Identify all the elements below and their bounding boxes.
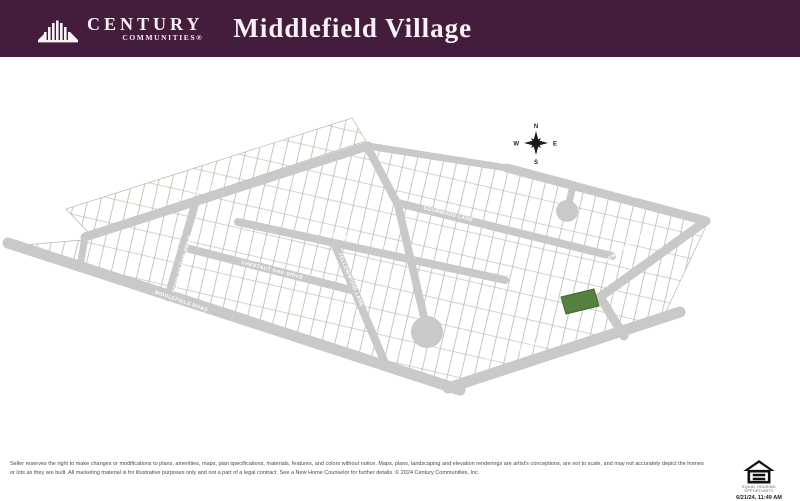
header: CENTURY COMMUNITIES® Middlefield Village <box>0 0 800 57</box>
cul-de-sac-east <box>556 200 578 222</box>
brand-name: CENTURY <box>87 15 203 33</box>
compass-s-label: S <box>534 160 538 166</box>
community-title: Middlefield Village <box>233 13 472 44</box>
equal-housing-block: EQUAL HOUSING OPPORTUNITY 6/21/24, 11:49… <box>728 460 790 501</box>
compass-w-label: W <box>513 142 519 148</box>
brand: CENTURY COMMUNITIES® <box>36 14 203 44</box>
footer: Seller reserves the right to make change… <box>0 450 800 500</box>
compass-n-label: N <box>534 124 538 130</box>
century-communities-logo-icon <box>36 14 80 44</box>
eho-label: EQUAL HOUSING OPPORTUNITY <box>728 485 790 494</box>
cul-de-sac-south <box>411 316 443 348</box>
compass-rose-icon: N S W E <box>513 124 557 166</box>
disclaimer-text: Seller reserves the right to make change… <box>10 460 710 477</box>
plat-map: N S W E <box>0 0 800 500</box>
road-west-connector <box>80 237 85 267</box>
brand-subtitle: COMMUNITIES® <box>87 34 203 42</box>
compass-e-label: E <box>553 142 557 148</box>
site-map: N S W E PURPLE IRIS STREET BRONZE OAK TE… <box>0 0 800 500</box>
equal-housing-logo-icon <box>743 460 775 484</box>
